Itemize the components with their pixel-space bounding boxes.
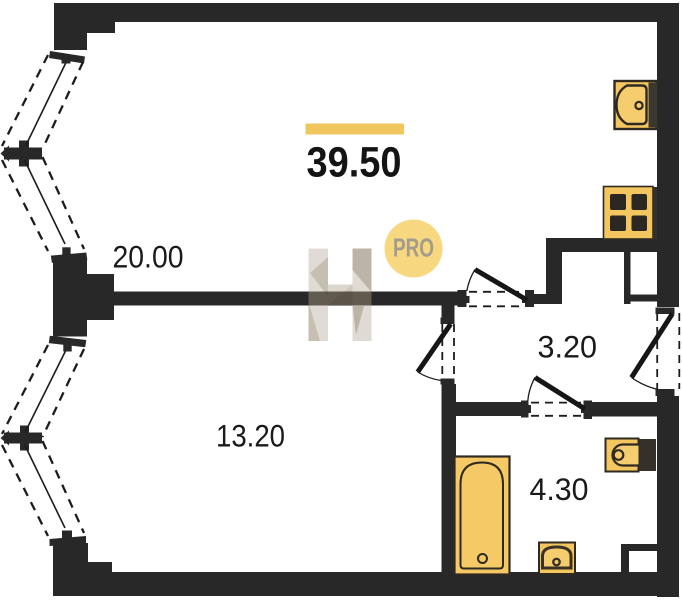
svg-text:4.30: 4.30 xyxy=(530,471,589,507)
svg-text:3.20: 3.20 xyxy=(538,329,598,365)
svg-text:20.00: 20.00 xyxy=(113,239,184,275)
svg-text:13.20: 13.20 xyxy=(216,418,285,454)
svg-text:39.50: 39.50 xyxy=(307,139,402,187)
svg-text:PRO: PRO xyxy=(393,235,434,263)
